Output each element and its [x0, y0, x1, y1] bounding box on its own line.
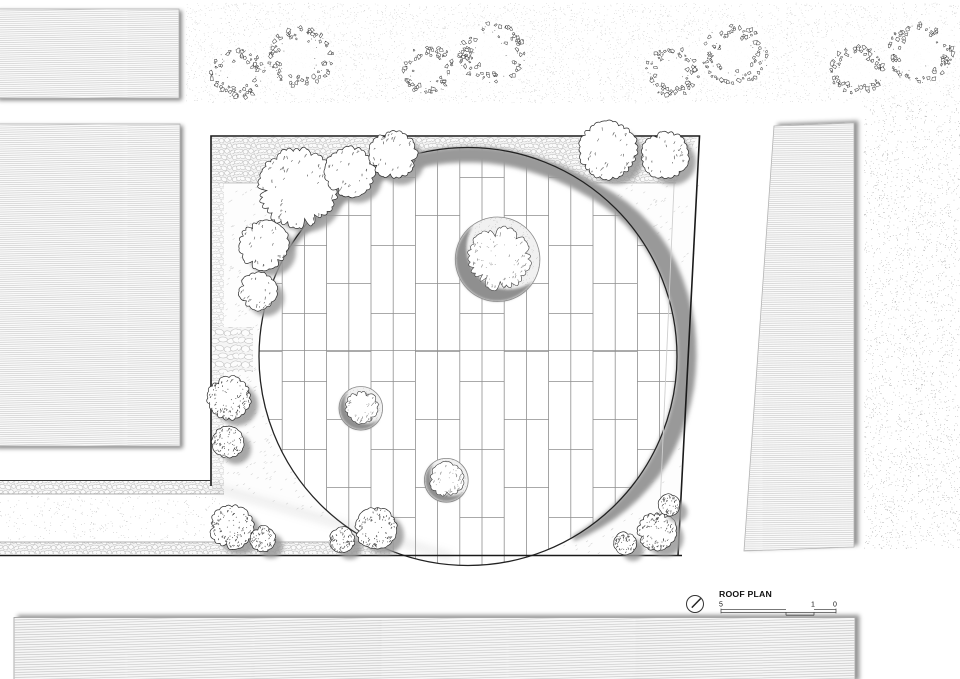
svg-text:ROOF PLAN: ROOF PLAN: [719, 589, 772, 599]
svg-text:5: 5: [719, 602, 723, 609]
svg-text:1: 1: [811, 602, 815, 609]
svg-text:0: 0: [833, 602, 837, 609]
